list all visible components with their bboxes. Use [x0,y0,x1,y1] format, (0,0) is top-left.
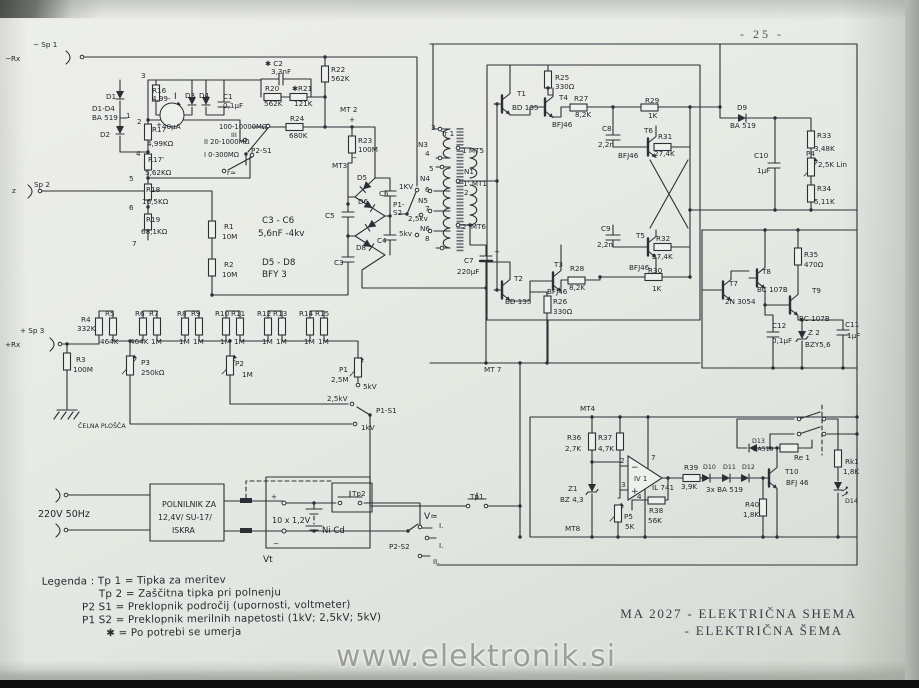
watermark: www.elektronik.si [336,639,616,674]
component-label: R36 [567,433,582,442]
component-label: R3 [76,355,86,364]
drawing-title: MA 2027 - ELEKTRIČNA SHEMA - ELEKTRIČNA … [595,605,857,639]
component-label: T5 [635,231,645,240]
component-label: 680K [289,131,308,140]
component-label: 4,7K [598,444,614,453]
component-label: P2-S2 [389,542,410,551]
component-label: 3,9K [681,482,697,491]
photographed-schematic-page: − Sp 1−RxzSp 2+ Sp 3+Rx3D1D1-D4BA 51912D… [0,0,919,688]
component-label: P1-S1 [376,406,397,415]
component-label: 68,1KΩ [141,227,168,236]
component-label: 1' MT1 [463,179,487,188]
component-label: Ni Cd [322,526,345,536]
component-label: N1 [464,167,474,176]
component-label: BA 519 [92,113,118,122]
component-label: V≃ [424,512,438,522]
component-label: BC 107B [799,314,830,323]
component-label: 220V 50Hz [38,509,90,520]
component-label: R35 [804,250,818,259]
component-label: C3 - C6 [262,216,295,226]
component-label: 2,2n [598,140,614,149]
component-label: +Rx [5,340,21,349]
component-label: 470Ω [804,260,824,269]
component-label: R18 [146,185,161,194]
component-label: 3,48K [814,144,835,153]
component-label: IV 1 [634,475,647,483]
component-label: 1M [220,337,231,346]
component-label: R11 [231,309,245,318]
component-label: BD 135 [512,103,538,112]
component-label: Tp2 [351,489,366,498]
component-label: D14 [845,498,858,505]
component-label: −Rx [5,54,21,63]
component-label: 100M [73,365,93,374]
component-label: BZ 4,3 [560,495,584,504]
component-label: C1 [223,92,233,101]
component-label: 1μF [847,331,860,340]
component-label: R5 [105,309,115,318]
component-label: 562K [264,99,283,108]
component-label: 27,4K [654,149,675,158]
component-label: D5 - D8 [262,258,296,268]
component-label: T6 [643,126,653,135]
component-label: II. [433,557,440,566]
component-label: 0,1μF [223,101,243,110]
component-label: R14 [299,309,314,318]
component-label: C6 [379,189,389,198]
component-label: − [273,539,279,548]
component-label: 1M [179,337,190,346]
component-label: 4,99KΩ [147,139,174,148]
page-number: - 25 - [740,27,784,42]
component-label: R7 [149,309,159,318]
component-label: IL 741 [652,483,674,492]
component-label: D2 [100,130,110,139]
component-label: 2,5kV [327,394,348,403]
component-label: R39 [684,463,699,472]
component-label: R13 [273,309,287,318]
component-label: I 0-300MΩ [204,151,239,159]
component-label: ✱R21 [292,84,312,93]
component-label: T2 [513,274,523,283]
photo-bottom-strip [0,680,919,688]
component-label: R40 [745,500,760,509]
component-label: 3,3nF [271,67,291,76]
component-label: 10 x 1,2V [272,516,311,525]
component-label: D5 [357,173,367,182]
component-label: z [12,186,16,195]
component-label: 5kv [399,229,413,238]
led-d14 [834,482,842,490]
component-label: BFJ46 [629,263,650,272]
component-label: I [174,92,177,102]
component-label: R31 [658,132,672,141]
component-label: 5 [429,164,434,173]
component-label: 100M [358,145,378,154]
component-label: C4 [377,236,387,245]
component-label: 6 [425,185,430,194]
component-label: R37 [598,433,612,442]
component-label: S2 [393,208,402,217]
photo-right-edge [905,0,919,688]
component-label: 4,99- [152,94,171,103]
component-label: 2,5K Lin [818,160,847,169]
component-label: R8 [177,309,187,318]
component-label: 1K [652,284,662,293]
component-label: 2,5kv [408,214,429,223]
component-label: BFJ46 [618,151,639,160]
component-label: MT8 [565,524,581,533]
component-label: BFJ46 [552,120,573,129]
component-label: I. [439,521,443,530]
component-label: 7 [425,204,430,213]
component-label: 1M [193,337,204,346]
component-label: 2 [620,456,625,465]
component-label: R27 [574,94,588,103]
component-label: R17 [152,125,166,134]
component-label: 12,4V/ SU-17/ [158,513,212,522]
component-label: BD 135 [505,297,531,306]
component-label: N6 [420,224,430,233]
component-label: T7 [728,279,738,288]
component-label: R1 [224,222,234,231]
component-label: MT 2 [340,105,357,114]
component-label: − Sp 1 [33,40,57,49]
component-label: Sp 2 [34,180,50,189]
component-label: T4 [558,93,568,102]
component-label: R28 [570,264,585,273]
component-label: 2,7K [565,444,581,453]
component-label: 330Ω [553,307,573,316]
component-label: 56K [648,516,662,525]
legend-lines: Legenda : Tp 1 = Tipka za meritevTp 2 = … [42,572,382,640]
component-label: 332K [77,324,96,333]
component-label: − [351,153,357,162]
component-label: 2 [137,117,142,126]
component-label: BFY 3 [262,270,287,280]
component-label: 1M [276,337,287,346]
component-label: P1 [339,365,348,374]
component-label: 2,2n [597,240,613,249]
component-label: R20 [265,84,280,93]
component-label: MT3 [332,161,347,170]
component-label: D1-D4 [92,104,115,113]
component-label: II 20-1000MΩ [204,138,250,146]
component-label: 562K [331,74,350,83]
component-label: 1M [242,370,253,379]
component-label: C12 [772,321,786,330]
title-line-2: - ELEKTRIČNA ŠEMA [595,622,857,639]
component-label: 1,8K [743,510,759,519]
component-label: 1K [648,111,658,120]
component-label: 464K [100,337,119,346]
component-label: Vt [263,555,273,565]
component-label: 3x BA 519 [706,485,743,494]
component-label: 8 [425,234,430,243]
component-label: 5,62KΩ [145,168,172,177]
component-label: MT 7 [484,365,501,374]
component-label: D13 [752,438,765,445]
component-label: 1kV [361,423,375,432]
component-label: D3 [185,91,195,100]
relay-coil [780,444,798,452]
component-label: ISKRA [172,526,195,535]
component-label: 5,6nF -4kv [258,229,305,239]
component-label: 7 [132,239,137,248]
component-label: 1M [234,337,245,346]
component-label: D12 [742,464,755,471]
component-label: P4 [806,149,815,158]
paper-bottom-edge [0,670,905,680]
component-label: P2 [235,359,244,368]
component-label: N3 [418,140,428,149]
component-label: R10 [215,309,230,318]
component-label: 3 [431,123,436,132]
component-label: − [631,463,639,473]
component-label: I. [439,541,443,550]
component-label: T8 [761,267,771,276]
component-label: 250kΩ [141,368,165,377]
component-label: D10 [703,464,716,471]
component-label: R2 [224,260,234,269]
component-label: 2,5M [331,375,349,384]
transistor-t4 [537,97,553,118]
component-label: 16,5KΩ [142,197,169,206]
component-label: 10M [222,270,237,279]
component-label: D6 [358,197,369,206]
component-label: 1 MT5 [462,146,484,155]
component-label: R12 [257,309,271,318]
component-label: Rk1 [845,457,859,466]
component-label: Z 2 [808,328,820,337]
legend: Legenda : Tp 1 = Tipka za meritevTp 2 = … [42,572,382,641]
transistor-t9 [782,295,798,316]
legend-line: ✱ = Po potrebi se umerja [106,624,381,639]
component-label: POLNILNIK ZA [162,500,217,509]
component-label: R33 [817,131,831,140]
component-label: D9 [737,103,748,112]
component-label: 220μF [457,267,479,276]
component-label: R26 [553,297,568,306]
component-label: R15 [315,309,329,318]
component-label: 1M [304,337,315,346]
component-label: BFJ 46 [786,478,809,487]
component-label: 1,8K [843,467,859,476]
component-label: ČELNA PLOŠČA [78,421,126,430]
component-label: 5K [625,522,635,531]
component-label: R32 [656,234,670,243]
component-label: R17' [148,155,164,164]
component-label: 1KV [399,182,413,191]
component-label: N4 [420,174,430,183]
component-label: 100-10000MΩ [219,123,267,131]
component-label: R9 [191,309,201,318]
component-label: R4 [81,315,91,324]
component-label: 7 [651,453,656,462]
component-label: 1M [262,337,273,346]
component-label: R29 [645,96,660,105]
component-label: R6 [135,309,145,318]
component-label: Tr 1 [440,129,454,138]
component-label: R24 [290,114,305,123]
component-label: 6 [129,203,134,212]
photo-corner-shadow [0,0,120,18]
component-label: + [271,492,277,501]
component-label: P3 [141,358,150,367]
component-label: BZY5,6 [805,340,831,349]
component-label: P2-S1 [251,146,272,155]
component-label: MT4 [580,404,596,413]
component-label: 330Ω [555,82,575,91]
component-label: r≃ [227,168,236,177]
component-label: 2 [464,188,469,197]
component-label: 464K [130,337,149,346]
component-label: 5,11K [814,197,835,206]
component-label: 5kV [363,382,377,391]
component-label: 5 [129,174,134,183]
component-label: 0,1μF [772,336,792,345]
component-label: 1M [318,337,329,346]
component-label: 27,4K [652,252,673,261]
component-label: R25 [555,73,569,82]
component-label: R19 [146,215,161,224]
component-label: 4 [425,149,430,158]
component-label: Re 1 [794,453,810,462]
component-label: Tp1 [469,492,484,501]
component-label: C9 [601,224,611,233]
component-label: 4 [136,149,141,158]
component-label: C8 [602,124,612,133]
component-label: 4 [637,492,642,501]
component-label: 3 [141,71,146,80]
component-label: BA 519 [730,121,756,130]
component-label: Z1 [568,484,578,493]
component-label: + Sp 3 [20,326,44,335]
component-label: D1 [106,92,116,101]
component-label: R23 [358,136,372,145]
component-label: R22 [331,65,345,74]
component-label: R34 [817,184,832,193]
component-label: BC 107B [757,285,788,294]
component-label: 1 [126,111,131,120]
component-label: R30 [648,266,663,275]
component-label: 1M [151,337,162,346]
component-label: 2N 3054 [725,297,756,306]
component-label: 3 [621,480,626,489]
component-label: D4 [199,91,210,100]
component-label: C10 [754,151,769,160]
component-label: C7 [464,256,474,265]
component-label: BA519 [753,446,774,453]
component-label: T1 [516,89,526,98]
component-label: 2' MT6 [462,222,486,231]
component-label: R38 [649,506,664,515]
component-label: + [349,115,355,124]
component-label: 10M [222,232,237,241]
component-label: C11 [845,320,859,329]
component-label: T3 [553,260,563,269]
component-label: + [494,247,500,256]
component-label: 121K [294,99,313,108]
component-label: 8,2K [569,283,585,292]
component-label: P5 [624,512,633,521]
component-label: D8 [356,243,367,252]
title-line-1: MA 2027 - ELEKTRIČNA SHEMA [595,605,857,622]
component-label: T10 [784,467,799,476]
component-label: 8,2K [575,110,591,119]
component-label: 1μF [757,166,770,175]
component-label: BFJ46 [547,287,568,296]
component-label: T9 [811,286,821,295]
component-label: C5 [325,211,335,220]
component-label: C3 [334,258,344,267]
component-label: D11 [723,464,736,471]
